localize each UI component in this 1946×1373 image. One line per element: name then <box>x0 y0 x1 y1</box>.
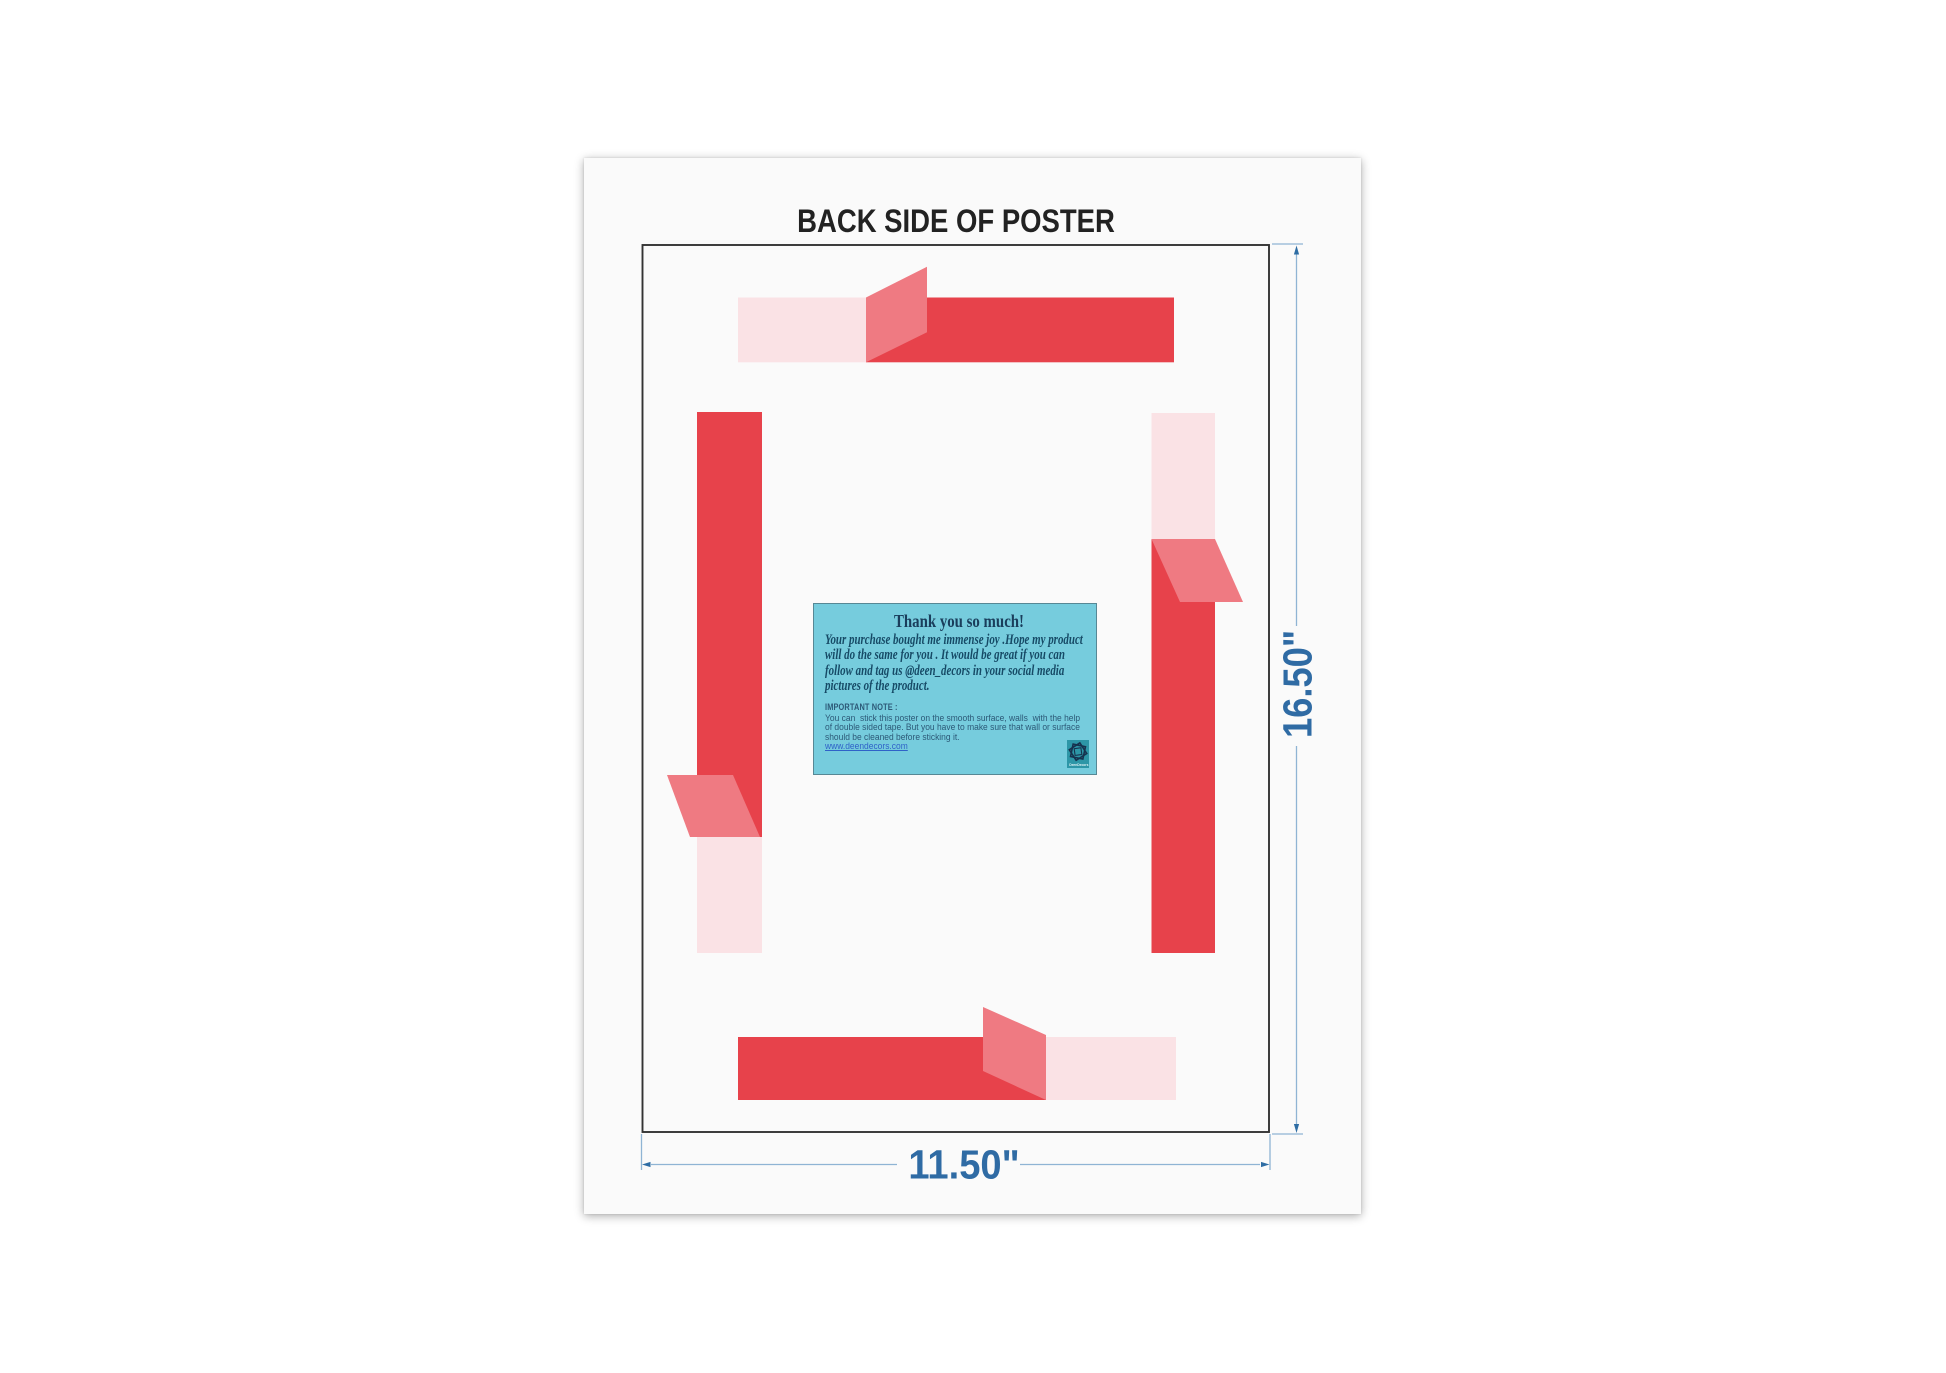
svg-text:16.50": 16.50" <box>1276 630 1322 738</box>
svg-text:11.50": 11.50" <box>908 1142 1019 1188</box>
svg-text:DeenDecors: DeenDecors <box>1069 763 1088 767</box>
